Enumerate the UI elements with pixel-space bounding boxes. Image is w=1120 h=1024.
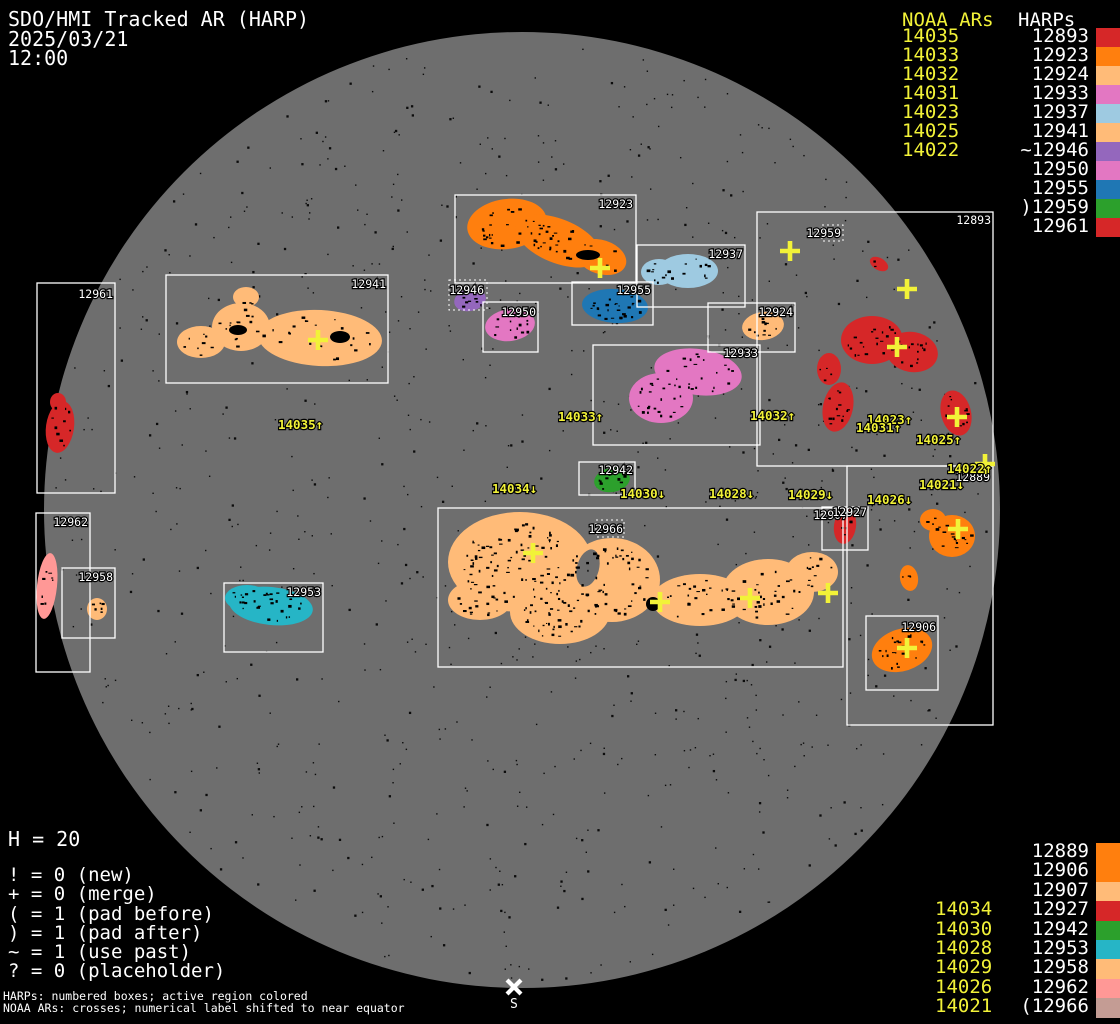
harp-label-12942: 12942 [598, 463, 633, 477]
legend-harp-12966: (12966 [999, 997, 1089, 1016]
legend-noaa-ar-14022: 14022 [902, 141, 959, 160]
noaa-label-14029: 14029↓ [788, 487, 833, 502]
legend-noaa-ar-14029: 14029 [935, 958, 992, 977]
legend-color-swatch-12959 [1096, 199, 1120, 218]
harp-label-12933: 12933 [723, 346, 758, 360]
active-region-blob [177, 326, 225, 358]
noaa-label-14028: 14028↓ [709, 486, 754, 501]
harp-label-12923: 12923 [598, 197, 633, 211]
legend-color-swatch-12937 [1096, 104, 1120, 123]
legend-color-swatch-12889 [1096, 843, 1120, 862]
legend-harp-12953: 12953 [999, 939, 1089, 958]
legend-color-swatch-12955 [1096, 180, 1120, 199]
south-pole-label: S [510, 997, 518, 1012]
legend-harp-12907: 12907 [999, 881, 1089, 900]
harp-label-12893: 12893 [956, 213, 991, 227]
symbol-legend: ! = 0 (new) + = 0 (merge) ( = 1 (pad bef… [8, 866, 225, 982]
legend-noaa-ar-14021: 14021 [935, 997, 992, 1016]
legend-color-swatch-12933 [1096, 85, 1120, 104]
noaa-label-14021: 14021↓ [919, 477, 964, 492]
harp-label-12924: 12924 [758, 305, 793, 319]
active-region-blob [920, 509, 946, 531]
active-region-blob [225, 585, 269, 611]
legend-color-swatch-12907 [1096, 882, 1120, 901]
legend-color-swatch-12941 [1096, 123, 1120, 142]
legend-color-swatch-12953 [1096, 940, 1120, 959]
legend-color-swatch-12923 [1096, 47, 1120, 66]
harp-label-12955: 12955 [616, 283, 651, 297]
noaa-label-14034: 14034↓ [492, 481, 537, 496]
harp-label-12950: 12950 [501, 305, 536, 319]
sunspot-dark-mark [576, 250, 600, 260]
sunspot-dark-mark [229, 325, 247, 335]
legend-color-swatch-12946 [1096, 142, 1120, 161]
noaa-label-14030: 14030↓ [620, 486, 665, 501]
noaa-label-14031: 14031↑ [856, 420, 901, 435]
page-title: SDO/HMI Tracked AR (HARP) [8, 9, 309, 29]
legend-color-swatch-12924 [1096, 66, 1120, 85]
harp-label-12941: 12941 [351, 277, 386, 291]
legend-harp-12906: 12906 [999, 861, 1089, 880]
legend-color-swatch-12950 [1096, 161, 1120, 180]
legend-color-swatch-12958 [1096, 959, 1120, 978]
sunspot-dark-mark [330, 331, 350, 343]
harp-count-label: H = 20 [8, 829, 80, 849]
legend-noaa-ar-14026: 14026 [935, 978, 992, 997]
legend-color-swatch-12962 [1096, 979, 1120, 998]
noaa-label-14032: 14032↑ [750, 408, 795, 423]
footnote-noaa: NOAA ARs: crosses; numerical label shift… [3, 1002, 405, 1014]
legend-noaa-ar-14030: 14030 [935, 920, 992, 939]
legend-color-swatch-12942 [1096, 921, 1120, 940]
active-region-blob [448, 580, 512, 620]
harp-label-12962: 12962 [53, 515, 88, 529]
legend-color-swatch-12927 [1096, 901, 1120, 920]
time-label: 12:00 [8, 48, 68, 68]
active-region-blob [641, 259, 677, 285]
harp-label-12966: 12966 [588, 522, 623, 536]
harp-label-12927: 12927 [832, 505, 867, 519]
legend-harp-12942: 12942 [999, 920, 1089, 939]
legend-color-swatch-12961 [1096, 218, 1120, 237]
harp-label-12959: 12959 [806, 226, 841, 240]
noaa-label-14026: 14026↓ [867, 492, 912, 507]
legend-noaa-ar-14034: 14034 [935, 900, 992, 919]
noaa-label-14033: 14033↑ [558, 409, 603, 424]
harp-label-12937: 12937 [708, 247, 743, 261]
harp-label-12958: 12958 [78, 570, 113, 584]
harp-label-12906: 12906 [901, 620, 936, 634]
legend-harp-12962: 12962 [999, 978, 1089, 997]
legend-harp-12961: 12961 [999, 217, 1089, 236]
active-region-blob [805, 582, 815, 590]
harp-label-12946: 12946 [449, 283, 484, 297]
legend-color-swatch-12893 [1096, 28, 1120, 47]
harp-label-12953: 12953 [286, 585, 321, 599]
legend-color-swatch-12966 [1096, 998, 1120, 1017]
legend-noaa-ar-14028: 14028 [935, 939, 992, 958]
noaa-label-14022: 14022↑ [947, 461, 992, 476]
noaa-label-14035: 14035↑ [278, 417, 323, 432]
active-region-blob [50, 393, 66, 411]
legend-harp-12927: 12927 [999, 900, 1089, 919]
noaa-label-14025: 14025↑ [916, 432, 961, 447]
legend-harp-12958: 12958 [999, 958, 1089, 977]
legend-color-swatch-12906 [1096, 862, 1120, 881]
harp-label-12961: 12961 [78, 287, 113, 301]
legend-harp-12889: 12889 [999, 842, 1089, 861]
